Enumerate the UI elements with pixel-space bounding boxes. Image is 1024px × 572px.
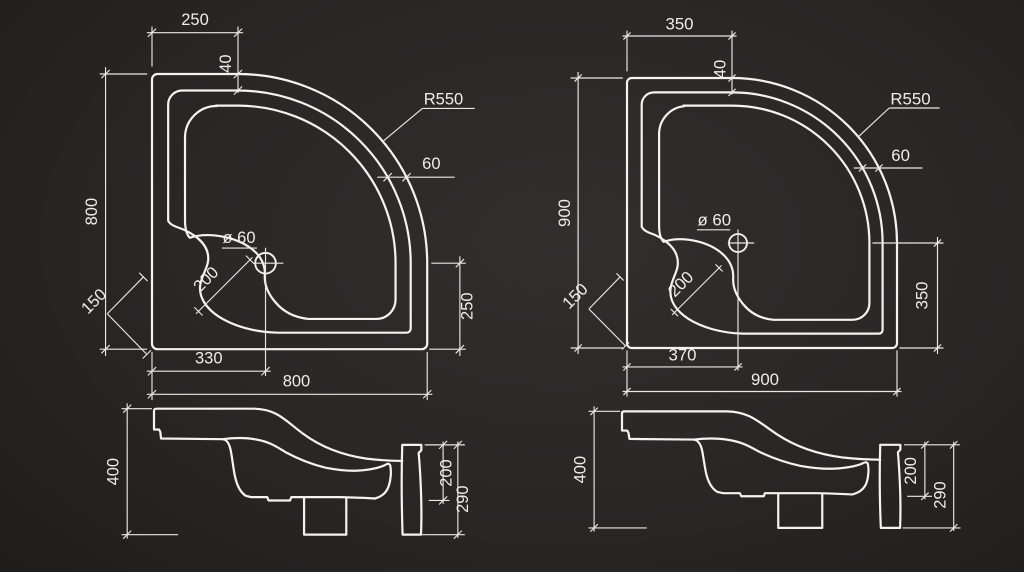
dim-line <box>589 277 620 309</box>
dimensions: 400 200 290 <box>571 406 960 531</box>
outer-outline <box>627 78 897 348</box>
dimensions: ø 60 250 40 R550 <box>78 11 477 400</box>
dim-top-offset: 350 <box>623 14 737 94</box>
profile-outlines <box>154 409 421 535</box>
dim-label-lower: 290 <box>932 481 950 508</box>
dimensions: 400 200 290 <box>104 403 471 538</box>
profile-skirt <box>402 445 422 535</box>
dim-rim-width: 60 <box>854 146 923 172</box>
dim-label-drain-from-left: 370 <box>668 345 696 364</box>
drain-label: ø 60 <box>223 229 256 247</box>
technical-drawing: ø 60 250 40 R550 <box>0 0 1024 572</box>
dim-label-height: 900 <box>555 199 574 227</box>
profile-inner-slope <box>694 438 869 494</box>
tray-900-side-view: 400 200 290 <box>571 406 960 531</box>
dim-label-upper: 200 <box>902 457 920 484</box>
dim-lower: 290 <box>422 441 472 539</box>
dim-label-ledge-width: 200 <box>190 264 222 296</box>
dim-label-drain-from-left: 330 <box>195 350 223 368</box>
dim-drain-from-bottom: 250 <box>429 256 476 356</box>
dim-drain-from-left: 370 <box>623 345 743 396</box>
dim-label-width: 900 <box>751 370 779 389</box>
dim-label-height: 400 <box>104 458 122 485</box>
dimensions: ø 60 350 40 R550 <box>555 14 944 396</box>
ext-line <box>107 314 147 355</box>
dim-lower: 290 <box>903 441 961 532</box>
dim-label-height: 400 <box>571 456 589 483</box>
dim-height: 900 <box>555 72 623 354</box>
dim-label-rim-width: 60 <box>891 146 910 165</box>
dim-label-radius: R550 <box>424 90 463 108</box>
tray-outlines <box>152 74 427 349</box>
dim-label-radius: R550 <box>890 89 930 108</box>
dim-line <box>107 277 143 314</box>
profile-inner-slope <box>223 438 391 499</box>
rim-outline <box>168 91 411 333</box>
dim-label-upper: 200 <box>437 459 455 486</box>
drain-centerlines: ø 60 <box>222 229 284 376</box>
dim-label-drain-from-bottom: 250 <box>459 292 477 320</box>
dim-label-top-offset: 350 <box>665 14 693 33</box>
basin-outline <box>185 106 396 319</box>
dim-corner-gap: 150 <box>78 273 151 359</box>
dim-label-rim-step: 40 <box>711 60 730 79</box>
dim-ledge-width: 200 <box>664 264 723 316</box>
dim-upper: 200 <box>902 441 960 500</box>
dim-drain-from-left: 330 <box>147 350 271 400</box>
dim-label-lower: 290 <box>454 485 472 512</box>
drain-label: ø 60 <box>698 211 732 230</box>
dim-label-top-offset: 250 <box>181 11 209 29</box>
dim-width: 800 <box>147 352 433 400</box>
tray-900-top-view: ø 60 350 40 R550 <box>555 14 944 396</box>
drain-centerlines: ø 60 <box>697 211 754 371</box>
profile-foot <box>304 498 346 535</box>
dim-label-drain-from-bottom: 350 <box>913 281 932 309</box>
dim-radius: R550 <box>383 90 475 141</box>
dim-corner-gap: 150 <box>558 273 629 349</box>
profile-rim-step <box>154 429 223 439</box>
dim-rim-width: 60 <box>377 155 454 181</box>
dim-top-offset: 250 <box>147 11 243 93</box>
dim-radius: R550 <box>858 89 939 136</box>
basin-outline <box>659 106 869 320</box>
profile-foot <box>778 494 822 528</box>
dim-ledge-width: 200 <box>190 256 254 316</box>
dim-label-rim-step: 40 <box>217 55 235 73</box>
tray-outlines <box>627 78 897 348</box>
dim-label-rim-width: 60 <box>422 155 440 173</box>
dim-label-corner-gap: 150 <box>558 279 591 312</box>
profile-skirt <box>880 445 901 528</box>
dim-label-ledge-width: 200 <box>664 267 697 300</box>
profile-outlines <box>622 411 900 528</box>
ext-line <box>589 309 626 346</box>
dim-width: 900 <box>623 350 902 396</box>
profile-top-edge <box>622 411 880 459</box>
dim-label-width: 800 <box>283 373 311 391</box>
profile-rim-step <box>622 431 694 440</box>
leader-line <box>858 108 889 137</box>
dim-height: 400 <box>104 403 152 538</box>
dim-label-height: 800 <box>83 198 101 226</box>
drawing-canvas: ø 60 250 40 R550 <box>0 0 1024 572</box>
leader-line <box>383 108 423 141</box>
tray-800-side-view: 400 200 290 <box>104 403 471 538</box>
tray-800-top-view: ø 60 250 40 R550 <box>78 11 477 400</box>
dim-height: 400 <box>571 406 620 531</box>
profile-top-edge <box>154 409 402 461</box>
